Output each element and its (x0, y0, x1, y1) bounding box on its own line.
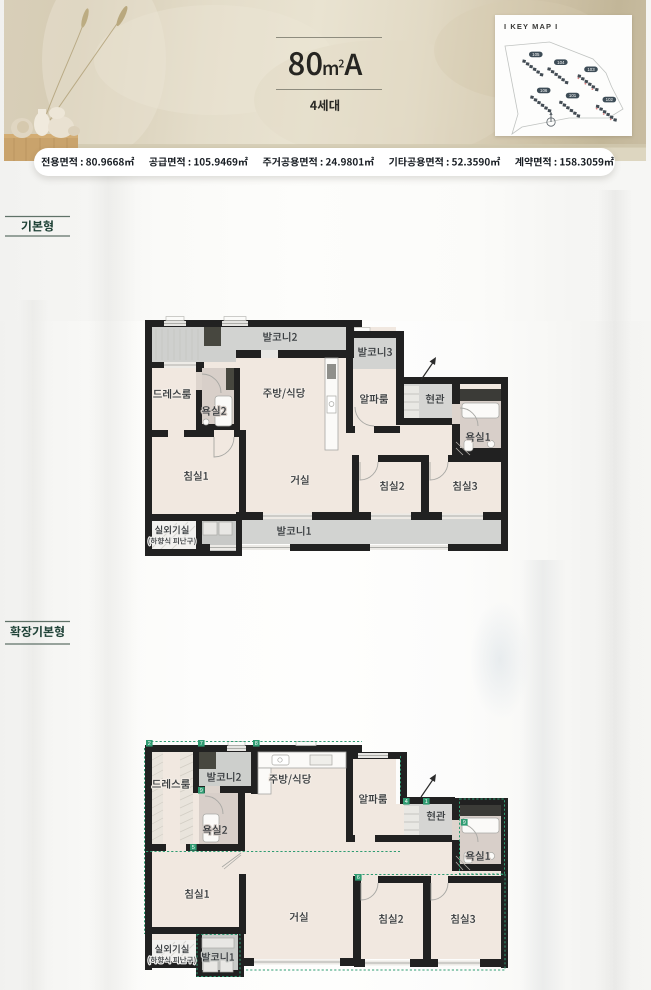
svg-text:7: 7 (200, 741, 203, 747)
svg-text:9: 9 (200, 788, 203, 794)
svg-text:2: 2 (148, 741, 151, 747)
svg-text:103: 103 (587, 67, 595, 72)
svg-text:6: 6 (357, 875, 360, 881)
svg-text:8: 8 (255, 741, 258, 747)
svg-text:101: 101 (569, 93, 577, 98)
svg-text:4: 4 (405, 799, 408, 805)
svg-text:105: 105 (532, 52, 540, 57)
svg-text:I KEY MAP I: I KEY MAP I (504, 22, 558, 31)
svg-text:104: 104 (557, 60, 565, 65)
svg-text:9: 9 (463, 820, 466, 826)
svg-text:5: 5 (192, 845, 195, 851)
svg-text:106: 106 (540, 88, 548, 93)
svg-text:1: 1 (425, 799, 428, 805)
svg-text:102: 102 (606, 97, 614, 102)
